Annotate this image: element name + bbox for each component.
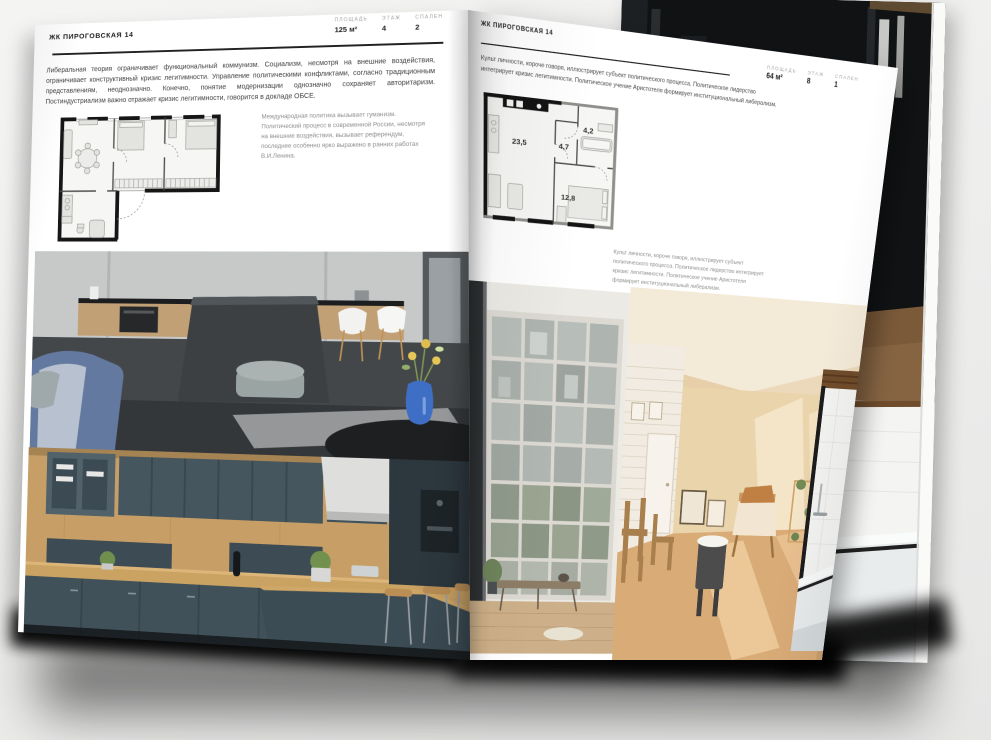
stat-value: 8: [806, 78, 810, 86]
stat-area: ПЛОЩАДЬ 125 м²: [335, 16, 368, 34]
stat-label: ЭТАЖ: [807, 70, 824, 78]
stat-value: 64 м²: [766, 72, 783, 82]
stat-area: ПЛОЩАДЬ 64 м²: [766, 64, 797, 84]
stat-value: 4: [382, 24, 386, 33]
stat-floor: ЭТАЖ 8: [806, 70, 824, 88]
spine-shade: [447, 10, 470, 660]
photo-dark-kitchen: [30, 251, 470, 461]
stat-value: 2: [415, 23, 419, 32]
floor-plan-left: [52, 109, 227, 247]
stat-value: 125 м²: [335, 25, 358, 35]
book-mockup-scene: ЖК ПИРОГОВСКАЯ 14 ПЛОЩАДЬ 125 м² ЭТАЖ 4 …: [0, 0, 991, 740]
spine-shade: [468, 10, 494, 660]
wood-beams: [821, 369, 859, 390]
page-left: ЖК ПИРОГОВСКАЯ 14 ПЛОЩАДЬ 125 м² ЭТАЖ 4 …: [18, 10, 470, 660]
room-area-living: 23,5: [512, 136, 527, 146]
wine-bottle: [233, 551, 240, 576]
stat-bedrooms: СПАЛЕН 1: [834, 73, 859, 92]
photo-collage: [469, 274, 868, 660]
stat-bedrooms: СПАЛЕН 2: [415, 14, 443, 32]
stat-label: ЭТАЖ: [382, 15, 401, 22]
pouf: [236, 360, 304, 398]
photo-loft-window: [469, 280, 631, 653]
stat-label: СПАЛЕН: [415, 14, 443, 21]
photo-wood-kitchen: [24, 447, 470, 660]
stat-label: СПАЛЕН: [835, 73, 859, 82]
stat-label: ПЛОЩАДЬ: [335, 16, 368, 23]
floor-plan-right: 23,5 4,7 4,2 12,8: [480, 87, 623, 236]
header-rule: [52, 42, 443, 55]
page-right: ЖК ПИРОГОВСКАЯ 14 Культ личности, короче…: [468, 10, 898, 660]
intro-paragraph: Либеральная теория ограничивает функцион…: [45, 55, 435, 108]
stat-value: 1: [834, 81, 838, 89]
apartment-stats: ПЛОЩАДЬ 125 м² ЭТАЖ 4 СПАЛЕН 2: [335, 14, 444, 34]
room-area-bedroom: 12,8: [561, 193, 576, 203]
plan-caption: Международная политика вызывает гуманизм…: [261, 109, 432, 162]
room-area-hall: 4,7: [559, 142, 570, 152]
blue-sofa: [30, 350, 124, 450]
stat-floor: ЭТАЖ 4: [382, 15, 401, 32]
apartment-stats: ПЛОЩАДЬ 64 м² ЭТАЖ 8 СПАЛЕН 1: [766, 64, 859, 92]
page-title: ЖК ПИРОГОВСКАЯ 14: [49, 30, 134, 41]
room-area-bath: 4,2: [583, 126, 594, 136]
